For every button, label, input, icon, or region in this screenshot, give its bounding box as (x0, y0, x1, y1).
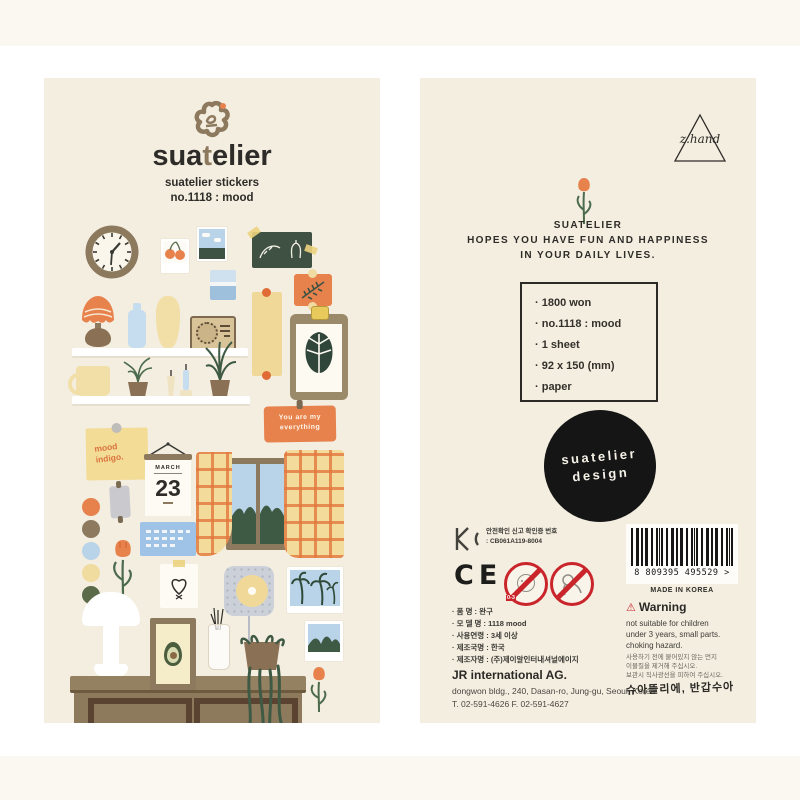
barcode-bars (631, 528, 733, 566)
pin (262, 371, 271, 380)
warning-line: 이물질을 제거해 주십시오. (626, 662, 723, 671)
window-pane (260, 464, 284, 544)
front-subtitle: suatelier stickers (44, 177, 380, 189)
tape (173, 560, 185, 567)
pin (111, 423, 121, 433)
sky (199, 229, 225, 248)
handwriting-line (146, 537, 186, 540)
calendar-page: MARCH 23 (145, 460, 191, 516)
made-in-label: MADE IN KOREA (626, 587, 738, 594)
calendar-day: 23 (145, 476, 191, 500)
warning-text-ko: 사용하기 전에 붙어있지 않는 먼지 이물질을 제거해 주십시오. 보관시 직사… (626, 653, 723, 680)
avocado-doodle (164, 642, 182, 666)
photo-bottom-band (0, 756, 800, 800)
spec-row: · 사용연령 : 3세 이상 (452, 630, 632, 642)
company-address: dongwon bldg., 240, Dasan-ro, Jung-gu, S… (452, 686, 655, 696)
warning-line: choking hazard. (626, 640, 720, 651)
brand-part: elier (212, 140, 272, 172)
mushroom-lamp-sticker (82, 592, 140, 676)
zhand-logo-text: z.hand (679, 132, 721, 146)
monstera-clipboard-sticker (290, 314, 348, 400)
vase-sticker (156, 296, 180, 348)
choking-figure (559, 572, 585, 596)
candles-sticker (164, 362, 194, 398)
glass-vase (208, 624, 230, 670)
cherry-fruit (175, 250, 185, 260)
sticker-sheet-back: z.hand SUATELIER HOPES YOU HAVE FUN AND … (420, 78, 756, 723)
avocado-frame-sticker (150, 618, 196, 690)
warning-line: under 3 years, small parts. (626, 629, 720, 640)
product-info-box: · 1800 won · no.1118 : mood · 1 sheet · … (520, 282, 658, 402)
orange-leaf-card-sticker (294, 274, 332, 306)
potted-sprigs-sticker (118, 350, 158, 398)
note-line: indigo. (95, 451, 124, 464)
scroll-banner-sticker (252, 292, 282, 376)
cloud (202, 233, 210, 237)
cherry-photo (163, 241, 187, 263)
stick-vase-sticker (206, 606, 230, 668)
info-item: · 1800 won (522, 284, 656, 314)
cd-disc (236, 575, 268, 607)
color-dot-yellow (82, 564, 100, 582)
badge-line: design (572, 464, 630, 487)
product-spec-list: · 품 명 : 완구 · 모 델 명 : 1118 mood · 사용연령 : … (452, 606, 632, 666)
cd-player-sticker (224, 566, 274, 616)
tall-plant-sticker (198, 336, 242, 398)
lamp-dome (82, 592, 140, 626)
bottle-sticker (128, 310, 146, 348)
pin (262, 288, 271, 297)
mood-indigo-note-sticker: moodindigo. (86, 427, 149, 480)
quote-line: everything (280, 424, 321, 432)
palm-photo (290, 570, 340, 606)
wall-shelf (72, 396, 250, 406)
suatelier-design-badge: suatelier design (539, 405, 660, 526)
barcode-digits: 8 809395 495529 > (631, 568, 733, 578)
lamp-base (94, 664, 128, 676)
field (199, 248, 225, 259)
blue-band (210, 286, 236, 300)
front-product-number: no.1118 : mood (44, 192, 380, 204)
cherry-stems (165, 241, 185, 251)
chalk-doodles (252, 232, 312, 268)
spec-row: · 품 명 : 완구 (452, 606, 632, 618)
palm-polaroid-sticker (286, 566, 344, 614)
info-item: · 92 x 150 (mm) (522, 356, 656, 377)
spec-row: · 제조자명 : (주)제이알인터내셔널에이지 (452, 654, 632, 666)
calendar-footer-mark (163, 502, 173, 504)
message-line: IN YOUR DAILY LIVES. (420, 250, 756, 261)
warning-line: 사용하기 전에 붙어있지 않는 먼지 (626, 653, 723, 662)
brand-part: sua (152, 140, 202, 172)
message-line: HOPES YOU HAVE FUN AND HAPPINESS (420, 235, 756, 246)
photo-top-band (0, 0, 800, 46)
cherry-polaroid-sticker (160, 238, 190, 274)
suatelier-flower-logo-icon (190, 100, 234, 144)
brand-t-accent: t (202, 140, 212, 172)
kc-certification: 안전확인 신고 확인증 번호 : CB061A119-8004 (454, 526, 644, 556)
clipboard-clip (311, 306, 329, 320)
choking-hazard-icon (550, 562, 594, 606)
table-frame (88, 698, 192, 723)
warning-title-text: Warning (639, 600, 687, 614)
quote-note-sticker: You are myeverything (264, 405, 337, 442)
color-dot-blue (82, 542, 100, 560)
mountain-photo (308, 624, 340, 652)
cloud (214, 238, 221, 242)
landscape-photo-sticker (196, 226, 228, 262)
handwritten-greeting: 슈아뜰리에, 반갑수아 (626, 678, 735, 698)
heart-doodle (160, 564, 198, 608)
window-frame (226, 458, 290, 550)
blue-gradient-card-sticker (210, 270, 236, 300)
table-lamp-sticker (76, 290, 120, 348)
curtain-left (196, 452, 232, 556)
warning-heading: ⚠Warning (626, 600, 686, 614)
spec-row: · 제조국명 : 한국 (452, 642, 632, 654)
quote-line: You are my (279, 414, 321, 422)
sticker-sheet-front: suatelier suatelier stickers no.1118 : m… (44, 78, 380, 723)
pin (118, 516, 123, 523)
mountain-polaroid-sticker (304, 620, 344, 662)
clipboard-paper (296, 324, 342, 392)
calendar-month: MARCH (145, 465, 191, 471)
switch-plate-sticker (109, 485, 131, 518)
mug-sticker (76, 366, 110, 396)
window-pane (232, 464, 256, 544)
frame-mat (156, 624, 190, 684)
info-item: · no.1118 : mood (522, 314, 656, 335)
color-dot-brown (82, 520, 100, 538)
blue-band (210, 270, 236, 282)
handwriting-line (146, 530, 190, 533)
warning-triangle-icon: ⚠ (626, 602, 636, 614)
pin (297, 400, 303, 409)
calendar-sticker: MARCH 23 (144, 442, 192, 516)
radio-line (220, 325, 230, 327)
lyric-note-sticker (140, 522, 196, 556)
landscape-photo (199, 229, 225, 259)
window-sticker (196, 450, 344, 558)
calendar-rule (154, 473, 182, 474)
lamp-stem (103, 626, 119, 666)
tulip-icon (570, 174, 598, 226)
tulip-sticker (108, 536, 138, 600)
handwriting-line (146, 544, 176, 547)
brand-wordmark: suatelier (44, 140, 380, 173)
color-dot-orange (82, 498, 100, 516)
age-range-label: 0-3 (506, 595, 516, 601)
info-item: · 1 sheet (522, 335, 656, 356)
company-phone: T. 02-591-4626 F. 02-591-4627 (452, 699, 569, 709)
hanging-plant-sticker (236, 634, 288, 723)
radio-line (220, 330, 230, 332)
pin (116, 481, 121, 488)
warning-text-en: not suitable for children under 3 years,… (626, 618, 720, 651)
barcode: 8 809395 495529 > (626, 524, 738, 584)
warning-line: not suitable for children (626, 618, 720, 629)
kc-label: 안전확인 신고 확인증 번호 (486, 527, 557, 537)
small-tulip-sticker (306, 664, 332, 714)
message-line: SUATELIER (420, 220, 756, 231)
tape-dot (308, 269, 317, 278)
ce-mark: CE (454, 560, 502, 591)
baby-face (517, 574, 535, 592)
heart-card-sticker (160, 564, 198, 608)
monstera-leaf (296, 324, 342, 392)
spec-row: · 모 델 명 : 1118 mood (452, 618, 632, 630)
wall-clock-sticker (84, 224, 140, 280)
chalkboard-sticker (252, 232, 312, 268)
zhand-triangle-logo: z.hand (672, 112, 728, 164)
info-item: · paper (522, 377, 656, 398)
curtain-right (284, 450, 344, 558)
kc-mark-icon (454, 526, 480, 552)
company-name: JR international AG. (452, 668, 567, 682)
age-warning-icon: 0-3 (504, 562, 548, 606)
kc-number: : CB061A119-8004 (486, 537, 557, 547)
